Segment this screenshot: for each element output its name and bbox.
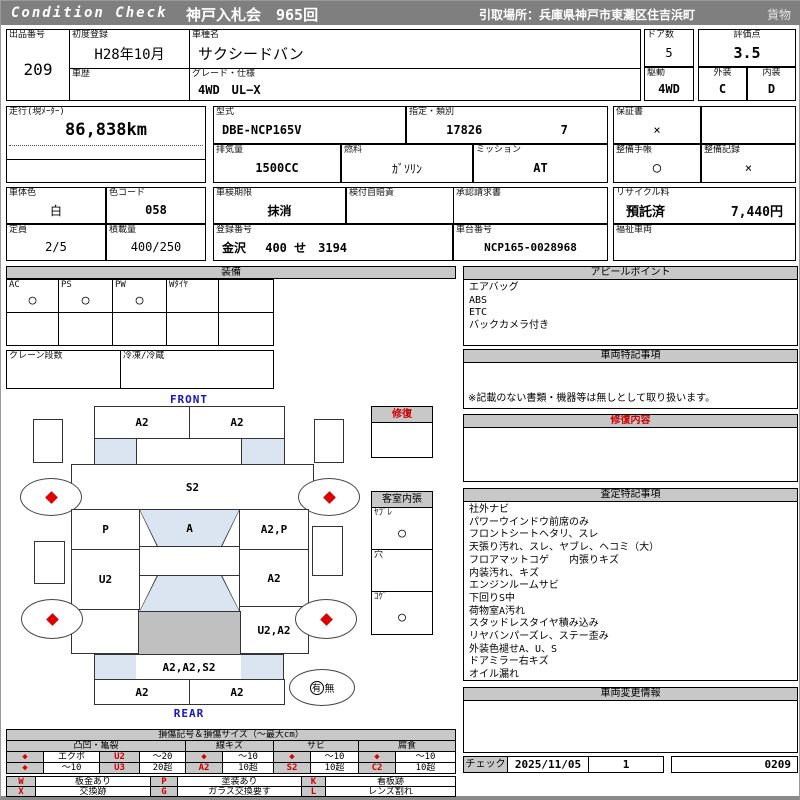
grade-cell: グレード・仕様 4WD UL−X (189, 68, 641, 101)
equipment-empty-cell (6, 312, 59, 346)
zone-hood: S2 (71, 464, 314, 510)
legend-diamond-icon: ◆ (6, 762, 44, 774)
equipment-wtire (167, 289, 218, 312)
legend-title: 損傷記号＆損傷サイズ（〜最大cm） (158, 730, 304, 740)
damage-diamond-icon (45, 491, 58, 504)
zone-rear-door-left: U2 (71, 549, 140, 610)
repair-box-title: 修復 (392, 409, 412, 420)
equipment-title: 装備 (221, 267, 241, 278)
zone-windshield: A (139, 509, 240, 547)
equipment-ps: ○ (59, 289, 112, 312)
fuel: ｶﾞｿﾘﾝ (342, 154, 472, 182)
legend-text: 〜10 (62, 763, 82, 773)
appeal-header: アピールポイント (463, 266, 798, 280)
headlight-right (241, 438, 285, 465)
trim-burn-cell: ｺｹﾞ ○ (371, 591, 433, 635)
interior-grade-cell: 内装 D (747, 67, 796, 101)
vehicle-notes-title: 車両特記事項 (601, 350, 661, 361)
zone-rear-door-right: A2 (239, 549, 309, 607)
transmission-cell: ミッション AT (473, 144, 608, 183)
trim-hole-cell: 穴 (371, 549, 433, 592)
legend-text: 20超 (153, 763, 173, 773)
legend-cell: 20超 (139, 762, 186, 774)
trim-burn: ○ (372, 601, 432, 634)
equipment-ps-cell: PS ○ (58, 279, 113, 313)
vin: NCP165-0028968 (454, 234, 607, 260)
legend-code: U2 (114, 752, 125, 762)
side-panel-rear-left (34, 541, 65, 584)
legend-code-u3: U3 (99, 762, 140, 774)
interior-trim-title: 客室内張 (382, 494, 422, 505)
change-info-body (463, 700, 798, 753)
change-info-title: 車両変更情報 (601, 688, 661, 699)
check-count: 1 (623, 760, 630, 770)
legend-code: X (18, 787, 23, 797)
history-cell: 車歴 (69, 68, 190, 101)
transmission: AT (474, 154, 607, 182)
legend-text: 板金あり (75, 777, 111, 787)
legend-cell: 10超 (310, 762, 359, 774)
zone-code: A (186, 522, 193, 535)
zone-code: A2 (135, 416, 148, 429)
rear-label: REAR (144, 707, 234, 720)
trim-tear-cell: ﾔﾌﾞﾚ ○ (371, 507, 433, 550)
score: 3.5 (699, 39, 795, 66)
drive-cell: 駆動 4WD (644, 67, 694, 101)
legend-code: G (161, 787, 166, 797)
approval (454, 197, 607, 223)
equipment-title-bar: 装備 (6, 266, 456, 279)
recycle-fee: 7,440円 (731, 201, 783, 220)
damage-diamond-icon: ◆ (374, 752, 379, 762)
legend-group-name: 凸凹・亀裂 (73, 741, 118, 751)
check-code-cell: 0209 (671, 756, 798, 773)
legend-text: 交換跡 (79, 787, 106, 797)
legend-code: K (311, 777, 316, 787)
equipment-empty-cell (112, 312, 167, 346)
zone-code: A2 (230, 686, 243, 699)
zone-code: A2 (267, 572, 280, 585)
zone-front-door-right: A2,P (239, 509, 309, 550)
roof-panel (139, 546, 240, 576)
spare-no: 無 (325, 680, 335, 695)
repair-box-body (371, 422, 433, 458)
class-values: 17826 7 (407, 116, 607, 143)
legend-group-name: 線キズ (216, 741, 243, 751)
legend-cell: 10超 (222, 762, 274, 774)
class-cell: 指定・類別 17826 7 (406, 106, 608, 144)
model-code: DBE-NCP165V (214, 116, 405, 143)
zone-code: A2 (230, 416, 243, 429)
model-name: サクシードバン (190, 39, 640, 68)
corner-panel-front-right (314, 419, 344, 463)
maintenance-book-cell: 整備手帳 ○ (613, 144, 701, 183)
grade: 4WD UL−X (190, 78, 640, 100)
damage-diamond-icon (320, 613, 333, 626)
legend-code: W (18, 777, 23, 787)
mileage: 86,838km (7, 117, 205, 143)
legend-code-s2: S2 (273, 762, 311, 774)
legend-text: 〜20 (153, 752, 173, 762)
legend-code: L (311, 787, 316, 797)
body-color-cell: 車体色 白 (6, 187, 106, 224)
check-label: チェック (466, 760, 506, 770)
doors-cell: ドア数 5 (644, 29, 694, 67)
check-date-cell: 2025/11/05 (507, 756, 589, 773)
capacity: 2/5 (7, 234, 105, 260)
legend-text: 看板跡 (377, 777, 404, 787)
vin-cell: 車台番号 NCP165-0028968 (453, 224, 608, 261)
first-registration-cell: 初度登録 H28年10月 (69, 29, 190, 69)
divider (7, 159, 205, 160)
wheel-rear-right (295, 599, 357, 639)
maintenance-record-cell: 整備記録 × (701, 144, 796, 183)
body-color: 白 (7, 197, 105, 223)
symbol-g-desc: ガラス交換要す (177, 786, 302, 797)
color-code-cell: 色コード 058 (106, 187, 206, 224)
legend-text: 10超 (416, 763, 436, 773)
assessment-title: 査定特記事項 (601, 489, 661, 500)
zone-front-bumper-left: A2 (94, 406, 190, 439)
divider (9, 145, 203, 146)
headlight-left (94, 438, 137, 465)
class-sub-number: 7 (561, 123, 568, 137)
taillight-left (95, 655, 136, 679)
welfare-cell: 福祉車両 (613, 224, 796, 261)
warranty: × (614, 116, 700, 143)
legend-text: 塗装あり (221, 777, 257, 787)
auction-sheet: Condition Check 神戸入札会 965回 引取場所：兵庫県神戸市東灘… (0, 0, 800, 800)
repair-box-header: 修復 (371, 406, 433, 423)
damage-diamond-icon: ◆ (22, 752, 27, 762)
plate-number: 金沢 400 せ 3194 (214, 234, 452, 260)
legend-text: レンズ割れ (368, 787, 413, 797)
equipment-empty-cell (58, 312, 113, 346)
corner-panel-front-left (33, 419, 63, 463)
legend-text: エクボ (58, 752, 85, 762)
exterior-grade-cell: 外装 C (698, 67, 747, 101)
lot-number-cell: 出品番号 209 (6, 29, 70, 101)
zone-tail-panel: A2,A2,S2 (94, 654, 284, 680)
trim-hole (372, 559, 432, 591)
first-registration: H28年10月 (70, 39, 189, 68)
vehicle-notes-header: 車両特記事項 (463, 349, 798, 363)
legend-text: 〜10 (238, 752, 258, 762)
empty-cell (701, 106, 796, 144)
wheel-rear-left (21, 599, 83, 639)
welfare (614, 234, 795, 260)
legend-code: A2 (199, 763, 210, 773)
zone-front-bumper-right: A2 (189, 406, 285, 439)
check-count-cell: 1 (588, 756, 664, 773)
check-code: 0209 (765, 760, 792, 770)
plate-number-cell: 登録番号 金沢 400 せ 3194 (213, 224, 453, 261)
maintenance-book: ○ (614, 154, 700, 182)
vehicle-notes-body: ※記載のない書類・機器等は無しとして取り扱います。 (463, 362, 798, 409)
damage-diamond-icon: ◆ (22, 763, 27, 773)
change-info-header: 車両変更情報 (463, 687, 798, 701)
zone-code: A2 (135, 686, 148, 699)
legend-text: 10超 (325, 763, 345, 773)
brand-title: Condition Check (11, 5, 167, 21)
legend-code: P (161, 777, 166, 787)
fuel-cell: 燃料 ｶﾞｿﾘﾝ (341, 144, 473, 183)
crane (7, 360, 120, 388)
equipment-wtire-cell: Wﾀｲﾔ (166, 279, 219, 313)
legend-code-a2: A2 (185, 762, 223, 774)
score-cell: 評価点 3.5 (698, 29, 796, 67)
zone-rear-bumper-right: A2 (189, 679, 285, 705)
lot-number: 209 (7, 39, 69, 100)
spare-yes-circled: 有 (310, 681, 324, 695)
drive: 4WD (645, 77, 693, 100)
legend-cell: 〜10 (43, 762, 100, 774)
recycle-fee-cell: リサイクル料 預託済 7,440円 (613, 187, 796, 224)
trim-tear: ○ (372, 517, 432, 549)
capacity-cell: 定員 2/5 (6, 224, 106, 261)
assessment-header: 査定特記事項 (463, 488, 798, 502)
symbol-x-code: X (6, 786, 36, 797)
zone-code: P (102, 523, 109, 536)
spare-tire-indicator: 有 無 (289, 669, 355, 706)
history (70, 78, 189, 100)
damage-diamond-icon: ◆ (201, 752, 206, 762)
cowl-panel (136, 438, 242, 465)
symbol-l-desc: レンズ割れ (325, 786, 456, 797)
load-capacity-cell: 積載量 400/250 (106, 224, 206, 261)
symbol-x-desc: 交換跡 (35, 786, 151, 797)
cargo-badge: 貨物 (767, 6, 791, 23)
legend-code: U3 (114, 763, 125, 773)
legend-cell: 10超 (395, 762, 456, 774)
equipment-ac: ○ (7, 289, 58, 312)
equipment-empty-cell (218, 312, 274, 346)
equipment-empty-cell (166, 312, 219, 346)
warranty-cell: 保証書 × (613, 106, 701, 144)
model-name-cell: 車種名 サクシードバン (189, 29, 641, 69)
auction-title: 神戸入札会 965回 (186, 4, 318, 25)
repair-detail-header: 修復内容 (463, 414, 798, 428)
damage-diamond-icon (46, 613, 59, 626)
symbol-l-code: L (301, 786, 326, 797)
legend-text: ガラス交換要す (208, 787, 271, 797)
damage-diamond-icon (323, 491, 336, 504)
legend-code-c2: C2 (358, 762, 396, 774)
legend-group-name: サビ (307, 741, 325, 751)
header-bar: Condition Check 神戸入札会 965回 引取場所：兵庫県神戸市東灘… (1, 1, 800, 25)
appeal-title: アピールポイント (591, 267, 671, 278)
fridge (121, 360, 273, 388)
inspection: 抹消 (214, 197, 345, 223)
legend-group-name: 腐食 (398, 741, 416, 751)
repair-detail-title: 修復内容 (611, 415, 651, 426)
crane-cell: クレーン段数 (6, 350, 121, 389)
zone-front-door-left: P (71, 509, 140, 550)
legend-code: S2 (287, 763, 298, 773)
model-code-cell: 型式 DBE-NCP165V (213, 106, 406, 144)
fridge-cell: 冷凍/冷蔵 (120, 350, 274, 389)
load-capacity: 400/250 (107, 234, 205, 260)
taillight-right (241, 655, 283, 679)
zone-code: A2,P (261, 523, 288, 536)
legend-code: C2 (372, 763, 383, 773)
check-label-cell: チェック (463, 756, 508, 773)
class-number: 17826 (446, 123, 482, 137)
damage-diamond-icon: ◆ (289, 752, 294, 762)
equipment-pw-cell: PW ○ (112, 279, 167, 313)
rear-window (139, 575, 240, 612)
approval-cell: 承認請求書 (453, 187, 608, 224)
doors: 5 (645, 39, 693, 66)
legend-text: 10超 (238, 763, 258, 773)
recycle-status: 預託済 (626, 201, 665, 220)
maintenance-record: × (702, 154, 795, 182)
side-panel-rear-right (312, 526, 343, 576)
mileage-cell: 走行(現ﾒｰﾀｰ) 86,838km (6, 106, 206, 183)
interior-trim-header: 客室内張 (371, 491, 433, 508)
vehicle-notes-disclaimer: ※記載のない書類・機器等は無しとして取り扱います。 (468, 393, 715, 406)
displacement-cell: 排気量 1500CC (213, 144, 341, 183)
exterior-grade: C (699, 77, 746, 100)
zone-code: A2,A2,S2 (163, 661, 216, 674)
assessment-body: 社外ナビ パワーウインドウ前席のみ フロントシートヘタリ、スレ 天張り汚れ、スレ… (463, 501, 798, 681)
zone-code: S2 (186, 481, 199, 494)
cargo-area (138, 611, 241, 655)
check-date: 2025/11/05 (515, 760, 581, 770)
interior-grade: D (748, 77, 795, 100)
inspection-cell: 車検期限 抹消 (213, 187, 346, 224)
legend-text: 〜10 (416, 752, 436, 762)
front-label: FRONT (144, 393, 234, 406)
recycle-values: 預託済 7,440円 (614, 197, 795, 223)
equipment-ac-cell: AC ○ (6, 279, 59, 313)
appeal-body: エアバッグ ABS ETC バックカメラ付き (463, 279, 798, 346)
color-code: 058 (107, 197, 205, 223)
equipment-pw: ○ (113, 289, 166, 312)
legend-text: 〜10 (325, 752, 345, 762)
symbol-g-code: G (150, 786, 178, 797)
zone-code: U2 (99, 573, 112, 586)
repair-detail-body (463, 427, 798, 482)
zone-rear-bumper-left: A2 (94, 679, 190, 705)
zone-code: U2,A2 (257, 624, 290, 637)
pickup-location: 引取場所：兵庫県神戸市東灘区住吉浜町 (479, 6, 695, 23)
equipment-extra-cell (218, 279, 274, 313)
displacement: 1500CC (214, 154, 340, 182)
